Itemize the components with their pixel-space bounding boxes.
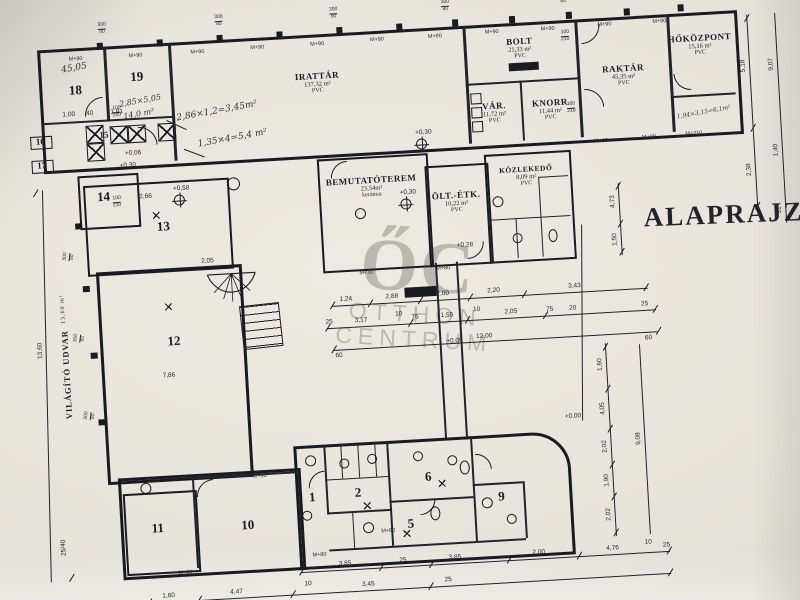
elevation-label: +0,28 [457, 241, 474, 249]
courtyard-label: VILÁGÍTÓ UDVAR 13,60 m² [55, 249, 75, 419]
window-mark [276, 31, 282, 38]
window-head-label: M+90 [541, 26, 555, 33]
window-mark [75, 223, 82, 229]
room-label-var: VÁR. 11,72 m² PVC [482, 100, 507, 124]
door-sill-label: M+90 [253, 473, 267, 480]
dim-label: 4,73 [609, 195, 617, 208]
hatched-cell [86, 143, 105, 162]
window-mark [509, 16, 515, 23]
dim-label: 1,24 [339, 295, 352, 303]
window-mark [336, 27, 342, 34]
dim-label: 2,00 [532, 549, 545, 557]
window-mark [91, 352, 98, 358]
room-label-hokozpont: HŐKÖZPONT 15,16 m² PVC [667, 31, 732, 58]
window-head-label: M+90 [310, 41, 324, 48]
window-size-label: 30080 [441, 0, 450, 12]
window-head-label: M+90 [652, 18, 666, 25]
window-mark [97, 43, 103, 50]
room-number-6: 6 [425, 468, 432, 484]
room-number-14: 14 [97, 189, 111, 206]
dim-label: 12,00 [476, 332, 493, 340]
dim-label: 2,05 [504, 308, 517, 316]
window-size-label: 30080 [558, 0, 567, 4]
dim-label: 2,02 [605, 508, 613, 521]
dim-label: 20 [569, 304, 577, 311]
dim-label: 2,66 [139, 193, 152, 201]
dim-label: 10 [304, 580, 312, 587]
room-number-19: 19 [130, 68, 144, 85]
dim-tick [656, 327, 662, 335]
wall [456, 262, 468, 440]
cabinet [471, 107, 483, 119]
elevation-label: +0,30 [119, 161, 136, 169]
window-size-label: 30080 [97, 22, 106, 34]
window-mark [677, 4, 683, 11]
door-size-label: 100210 [561, 30, 570, 42]
dim-label: 25 [641, 300, 649, 307]
dim-line [42, 191, 52, 583]
dim-label: 2,38 [745, 163, 753, 176]
boundary-line [581, 225, 583, 421]
window-head-label: M+90 [190, 49, 204, 56]
dim-label: 1,40 [772, 144, 780, 157]
window-head-label: M+90 [370, 36, 384, 43]
room-olt-etk [424, 163, 494, 268]
room-number-17: 17 [37, 160, 47, 171]
elevation-label: +0,58 [173, 184, 190, 192]
door-size-label: 100210 [567, 102, 576, 114]
dim-label: 2,02 [601, 440, 609, 453]
dim-label: 3,43 [568, 282, 581, 290]
dim-label: 10 [473, 306, 481, 313]
x-mark-icon [153, 212, 160, 219]
round-fixture [227, 177, 241, 191]
room-number-2: 2 [354, 485, 361, 501]
dim-label: 1,00 [62, 111, 75, 119]
dim-label: 10 [395, 310, 403, 317]
dim-label: 1,60 [162, 592, 175, 600]
dim-label: 4,05 [599, 402, 607, 415]
dim-label: 2,88 [385, 293, 398, 301]
room-number-15: 15 [99, 130, 109, 141]
room-label-bolt: BOLT 21,33 m² PVC [506, 35, 533, 59]
window-head-label: M+90 [428, 33, 442, 40]
window-mark [216, 35, 222, 42]
room-label-irattar: IRATTÁR 137,32 m² PVC [295, 70, 341, 96]
dim-tick [653, 305, 659, 313]
window-size-label: 30080 [214, 15, 223, 27]
room-number-16: 16 [35, 136, 45, 147]
window-mark [83, 286, 90, 292]
room-number-10: 10 [241, 517, 255, 534]
room-number-18: 18 [68, 82, 82, 99]
door-sill-label: M+90 [594, 138, 608, 145]
dim-label: 2,20 [487, 287, 500, 295]
floor-plan-photo: ŐC OTTHON CENTRUM [0, 0, 800, 600]
room-label-olt-etk: ÖLT.-ÉTK. 10,22 m² PVC [432, 189, 482, 215]
cabinet [470, 93, 482, 105]
room-label-knorr: KNORR 11,44 m² PVC [532, 97, 569, 122]
room-label-kozlekedo: KÖZLEKEDŐ 8,09 m² PVC [499, 163, 553, 188]
window-mark [157, 39, 163, 46]
cabinet [472, 121, 484, 133]
dim-line [774, 13, 787, 223]
dim-tick [69, 574, 75, 582]
dim-label: 4,47 [230, 588, 243, 596]
dim-label: 60 [335, 352, 343, 359]
elevation-label: +0,30 [399, 188, 416, 196]
hatched-cell [110, 125, 129, 144]
dim-label: 40 [86, 110, 94, 117]
dim-label: 25 [663, 541, 671, 548]
dim-label: 9,07 [767, 58, 775, 71]
x-mark-icon [438, 480, 445, 487]
door-sill-label: M+80 [312, 552, 326, 559]
dim-label: 75 [411, 313, 419, 320]
dim-label: 25/40 [60, 539, 68, 556]
dim-label: 3,45 [362, 580, 375, 588]
stairs [239, 302, 284, 350]
dim-label: 3,85 [448, 553, 461, 561]
dim-label: 9,08 [635, 432, 643, 445]
dim-tick [643, 283, 649, 291]
dim-label: 3,85 [339, 560, 352, 568]
page-title: ALAPRAJZ [643, 196, 800, 233]
door-sill-label: M+210 [685, 130, 702, 137]
dim-label: 1,60 [596, 358, 604, 371]
dim-tick [668, 568, 674, 576]
door-sill-label: M+90 [642, 134, 656, 141]
dim-label: 1,55 [440, 311, 453, 319]
door-sill-label: M+30 [359, 269, 373, 276]
door-sill-label: M+80 [381, 528, 395, 535]
dim-line [746, 15, 758, 210]
stair-fan [203, 270, 261, 307]
dim-label: 75 [546, 306, 554, 313]
window-mark [624, 8, 630, 15]
dim-line [327, 309, 657, 329]
dim-label: 1,50 [611, 233, 619, 246]
dim-label: 1,90 [603, 474, 611, 487]
window-mark [98, 419, 105, 425]
dim-label: 2,00 [436, 290, 449, 298]
room-label-raktar: RAKTÁR 45,35 m² PVC [602, 62, 645, 87]
dim-tick [33, 189, 39, 197]
dim-label: 2,05 [201, 257, 214, 265]
window-size-label: 30080 [329, 7, 338, 19]
window-mark [396, 23, 402, 30]
window-head-label: M+90 [485, 29, 499, 36]
window-mark [566, 12, 572, 19]
window-head-label: M+90 [128, 52, 142, 59]
dim-label: 4,76 [606, 544, 619, 552]
wall-section [404, 286, 437, 298]
room-number-12: 12 [167, 333, 181, 350]
room-number-9: 9 [498, 488, 505, 504]
door-sill-label: M+90 [178, 569, 192, 576]
top-wing-outline [37, 10, 744, 174]
x-mark-icon [403, 530, 410, 537]
room-number-13: 13 [156, 218, 170, 235]
window-size-label: 30080 [84, 411, 97, 421]
elevation-label: +0,06 [125, 149, 142, 157]
window-head-label: M+90 [250, 44, 264, 51]
dim-label: 25 [444, 576, 452, 583]
dim-line [147, 573, 671, 600]
reception-desk [509, 62, 539, 72]
dim-label: 25 [325, 318, 333, 325]
room-number-1: 1 [309, 489, 316, 505]
elevation-label: +0,30 [415, 128, 432, 136]
x-mark-icon [165, 303, 172, 310]
dim-label: 7,86 [162, 372, 175, 380]
elevation-label: +0,00 [565, 412, 582, 420]
dim-label: 5,18 [739, 59, 747, 72]
hatched-cell [157, 123, 176, 142]
dim-label: 13,60 [36, 342, 44, 359]
dim-label: 60 [645, 334, 653, 341]
window-mark [452, 19, 458, 26]
dim-label: 1,81 [110, 108, 123, 116]
dim-label: 3,17 [355, 316, 368, 324]
plan-drawing: M+90 M+90 M+90 M+90 M+90 M+90 M+90 M+90 … [0, 0, 800, 600]
door-sill-label: M+80 [436, 265, 450, 272]
dim-label: 10 [645, 538, 653, 545]
window-size-label: 30080 [73, 334, 86, 344]
dim-line [333, 331, 658, 351]
room-number-11: 11 [151, 520, 164, 537]
dim-label: 25 [399, 557, 407, 564]
x-mark-icon [364, 502, 371, 509]
